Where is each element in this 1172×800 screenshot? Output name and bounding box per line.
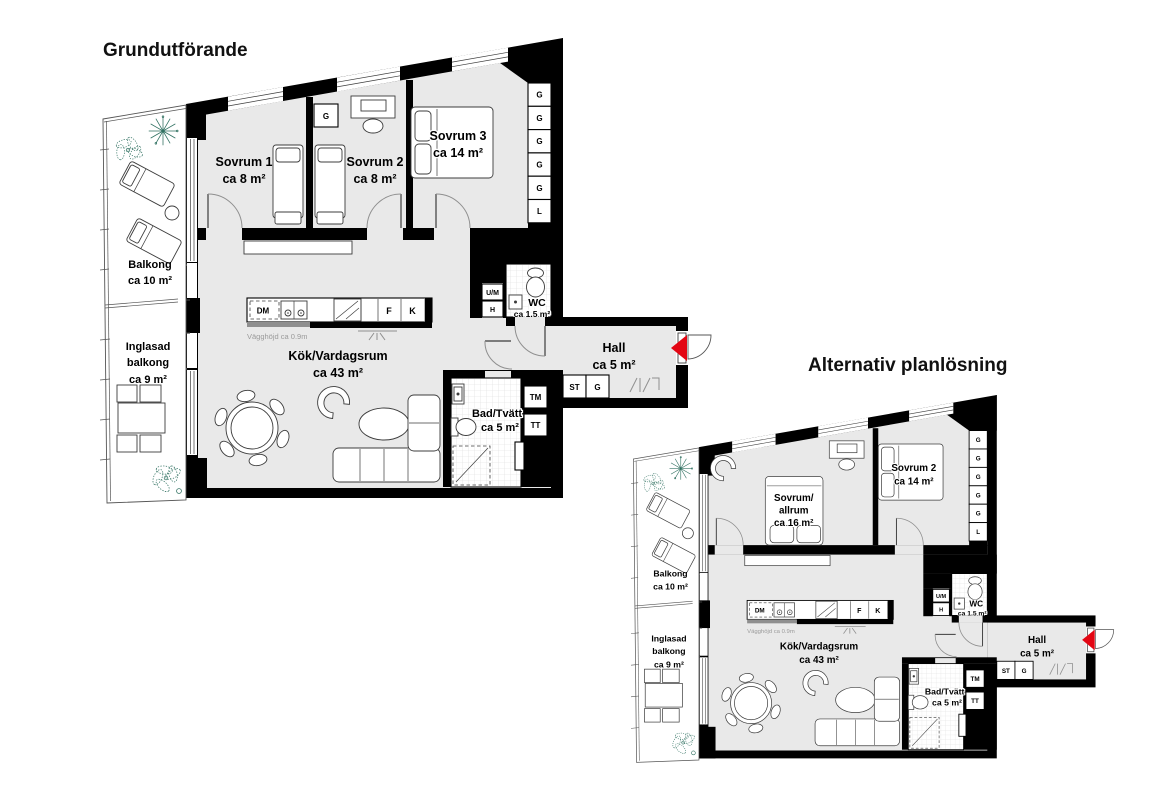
- sovrum-allrum-area: ca 16 m²: [774, 518, 814, 529]
- kok-label: Kök/Vardagsrum: [288, 349, 387, 363]
- plan2-title: Alternativ planlösning: [808, 355, 1008, 376]
- sovrum2-alt-label: Sovrum 2: [891, 463, 936, 474]
- g-closet-label: G: [594, 383, 600, 392]
- sovrum2-alt-area: ca 14 m²: [894, 476, 934, 487]
- sovrum2-area: ca 8 m²: [353, 172, 396, 186]
- floorplan-drawing: G G G G G L WC ca 1.5 m² U/M H: [0, 0, 1172, 800]
- balcony-door-opening: [187, 333, 197, 368]
- hall-area: ca 5 m²: [592, 358, 635, 372]
- balcony-strip: [100, 105, 187, 503]
- balcony-table: [165, 206, 179, 220]
- inglasad-area: ca 9 m²: [129, 374, 167, 386]
- wardrobe-column: G G G G G L: [528, 83, 551, 223]
- window: [187, 138, 197, 262]
- plan1-title: Grundutförande: [103, 40, 248, 61]
- toilet: [527, 277, 545, 297]
- wall-height-note: Vägghöjd ca 0.9m: [247, 332, 307, 341]
- wardrobe-label: G: [536, 137, 542, 146]
- inglasad-label-2: balkong: [127, 357, 169, 369]
- plan-alternativ: Sovrum/ allrum ca 16 m² Sovrum 2 ca 14 m…: [631, 395, 1114, 762]
- sovrum-allrum-label-2: allrum: [779, 506, 809, 517]
- wardrobe-label: G: [536, 114, 542, 123]
- toilet: [528, 268, 544, 278]
- um-label: U/M: [486, 290, 499, 297]
- wc-label: WC: [528, 297, 546, 309]
- dining-table: [226, 402, 278, 454]
- sovrum3-area: ca 14 m²: [433, 146, 483, 160]
- freezer-label: K: [409, 306, 416, 316]
- wardrobe-label: L: [537, 207, 542, 216]
- window: [187, 370, 197, 455]
- kok-area: ca 43 m²: [313, 366, 363, 380]
- room-wc: WC ca 1.5 m²: [506, 264, 551, 319]
- floorplan-page: G G G G G L WC ca 1.5 m² U/M H: [0, 0, 1172, 800]
- wardrobe-label: G: [536, 184, 542, 193]
- hall-label: Hall: [603, 341, 626, 355]
- fridge-label: F: [386, 306, 392, 316]
- h-label: H: [490, 307, 495, 314]
- sovrum1-area: ca 8 m²: [222, 172, 265, 186]
- balcony-dining-set: [117, 385, 165, 452]
- wardrobe-label: G: [536, 161, 542, 170]
- st-closet-label: ST: [569, 383, 579, 392]
- wardrobe-g-label: G: [323, 112, 329, 121]
- coffee-table: [359, 408, 409, 440]
- um-h-closets: U/M H: [482, 284, 503, 317]
- bad-tvatt-area: ca 5 m²: [481, 422, 519, 434]
- balkong-label: Balkong: [128, 259, 171, 271]
- sovrum2-label: Sovrum 2: [347, 155, 404, 169]
- sideboard: [244, 241, 352, 254]
- wardrobe-label: G: [536, 91, 542, 100]
- tm-label: TM: [530, 393, 542, 402]
- balkong-area: ca 10 m²: [128, 275, 172, 287]
- dm-label: DM: [257, 307, 270, 316]
- apartment-common-layout: G G G G G L WC ca 1.5 m² U/M H: [100, 38, 711, 503]
- sovrum3-label: Sovrum 3: [430, 129, 487, 143]
- balcony-door-opening: [187, 263, 197, 298]
- plan-grundutforande: G G G G G L WC ca 1.5 m² U/M H: [100, 38, 711, 503]
- tt-label: TT: [531, 421, 541, 430]
- inglasad-label-1: Inglasad: [126, 341, 171, 353]
- sovrum-allrum-label-1: Sovrum/: [774, 493, 814, 504]
- bad-tvatt-label: Bad/Tvätt: [472, 408, 522, 420]
- sovrum1-label: Sovrum 1: [216, 155, 273, 169]
